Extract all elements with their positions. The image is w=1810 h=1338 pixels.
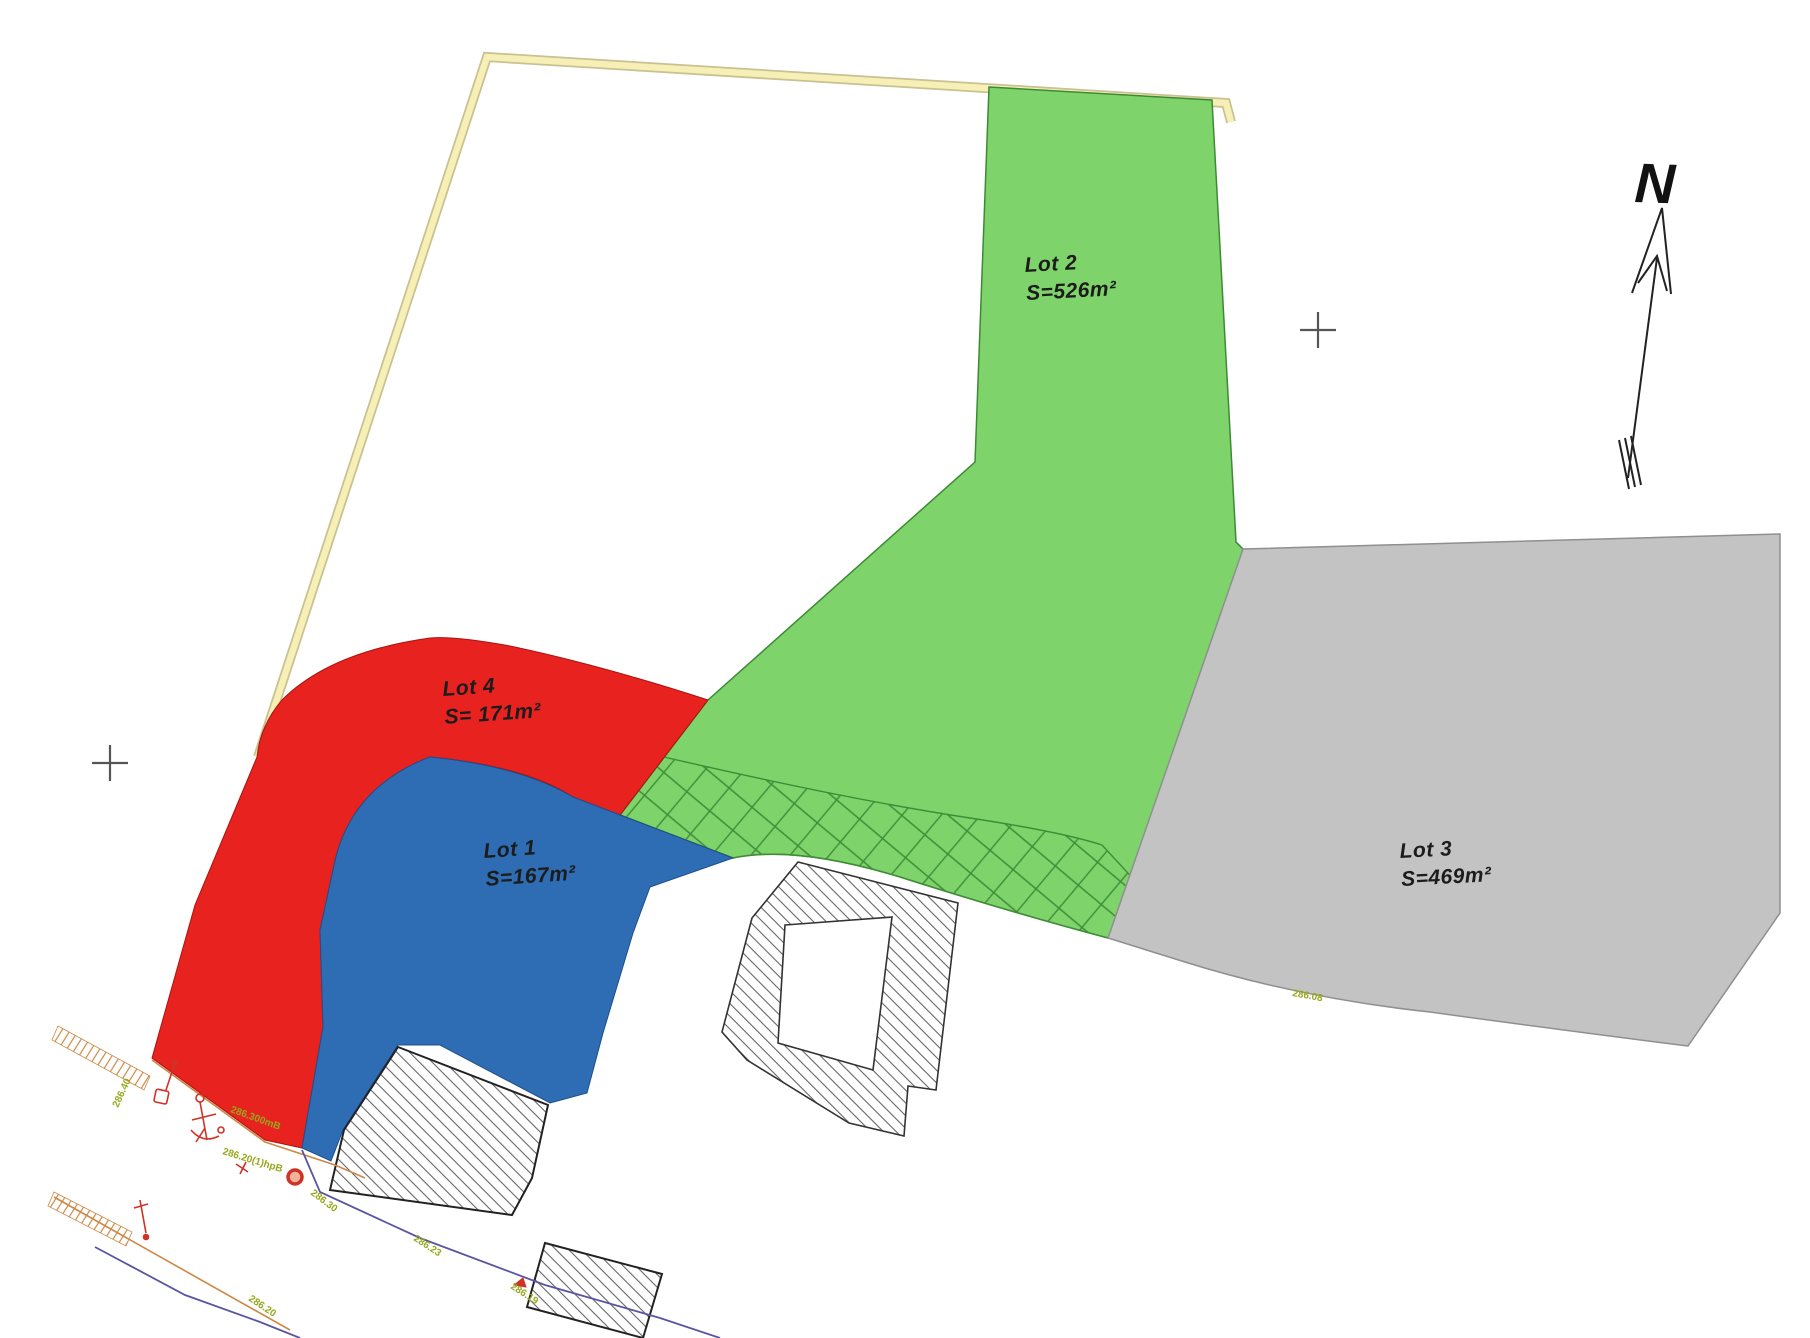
lot3-name-label: Lot 3 [1399, 837, 1453, 863]
lot2-name-label: Lot 2 [1024, 251, 1078, 277]
benchmark-ring-symbol [288, 1170, 302, 1184]
lot1-name-label: Lot 1 [483, 836, 537, 863]
lot4-name-label: Lot 4 [442, 674, 496, 701]
cadastral-plan: 286.40 286.300mB 286.20(1)hpB 286.30 286… [0, 0, 1810, 1338]
lot2-area-label: S=526m² [1026, 277, 1118, 305]
north-label: N [1634, 151, 1678, 215]
lot3-area-label: S=469m² [1401, 863, 1493, 891]
plan-drawing: 286.40 286.300mB 286.20(1)hpB 286.30 286… [0, 0, 1810, 1338]
